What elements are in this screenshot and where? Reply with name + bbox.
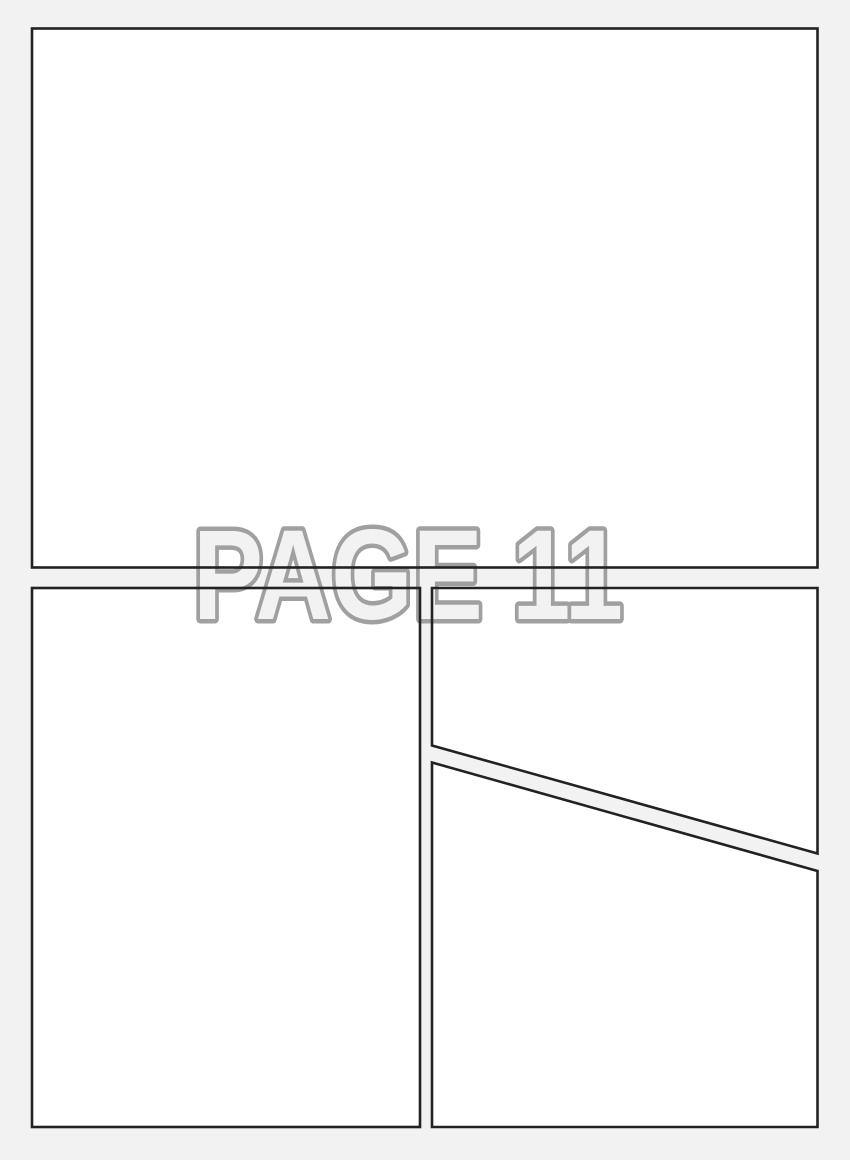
panel-1-fill <box>32 29 818 568</box>
comic-page-canvas: PAGE 11 <box>0 0 850 1160</box>
panel-2-fill <box>32 588 420 1127</box>
comic-page: PAGE 11 <box>0 0 850 1160</box>
page-number-watermark: PAGE 11 <box>193 504 623 647</box>
